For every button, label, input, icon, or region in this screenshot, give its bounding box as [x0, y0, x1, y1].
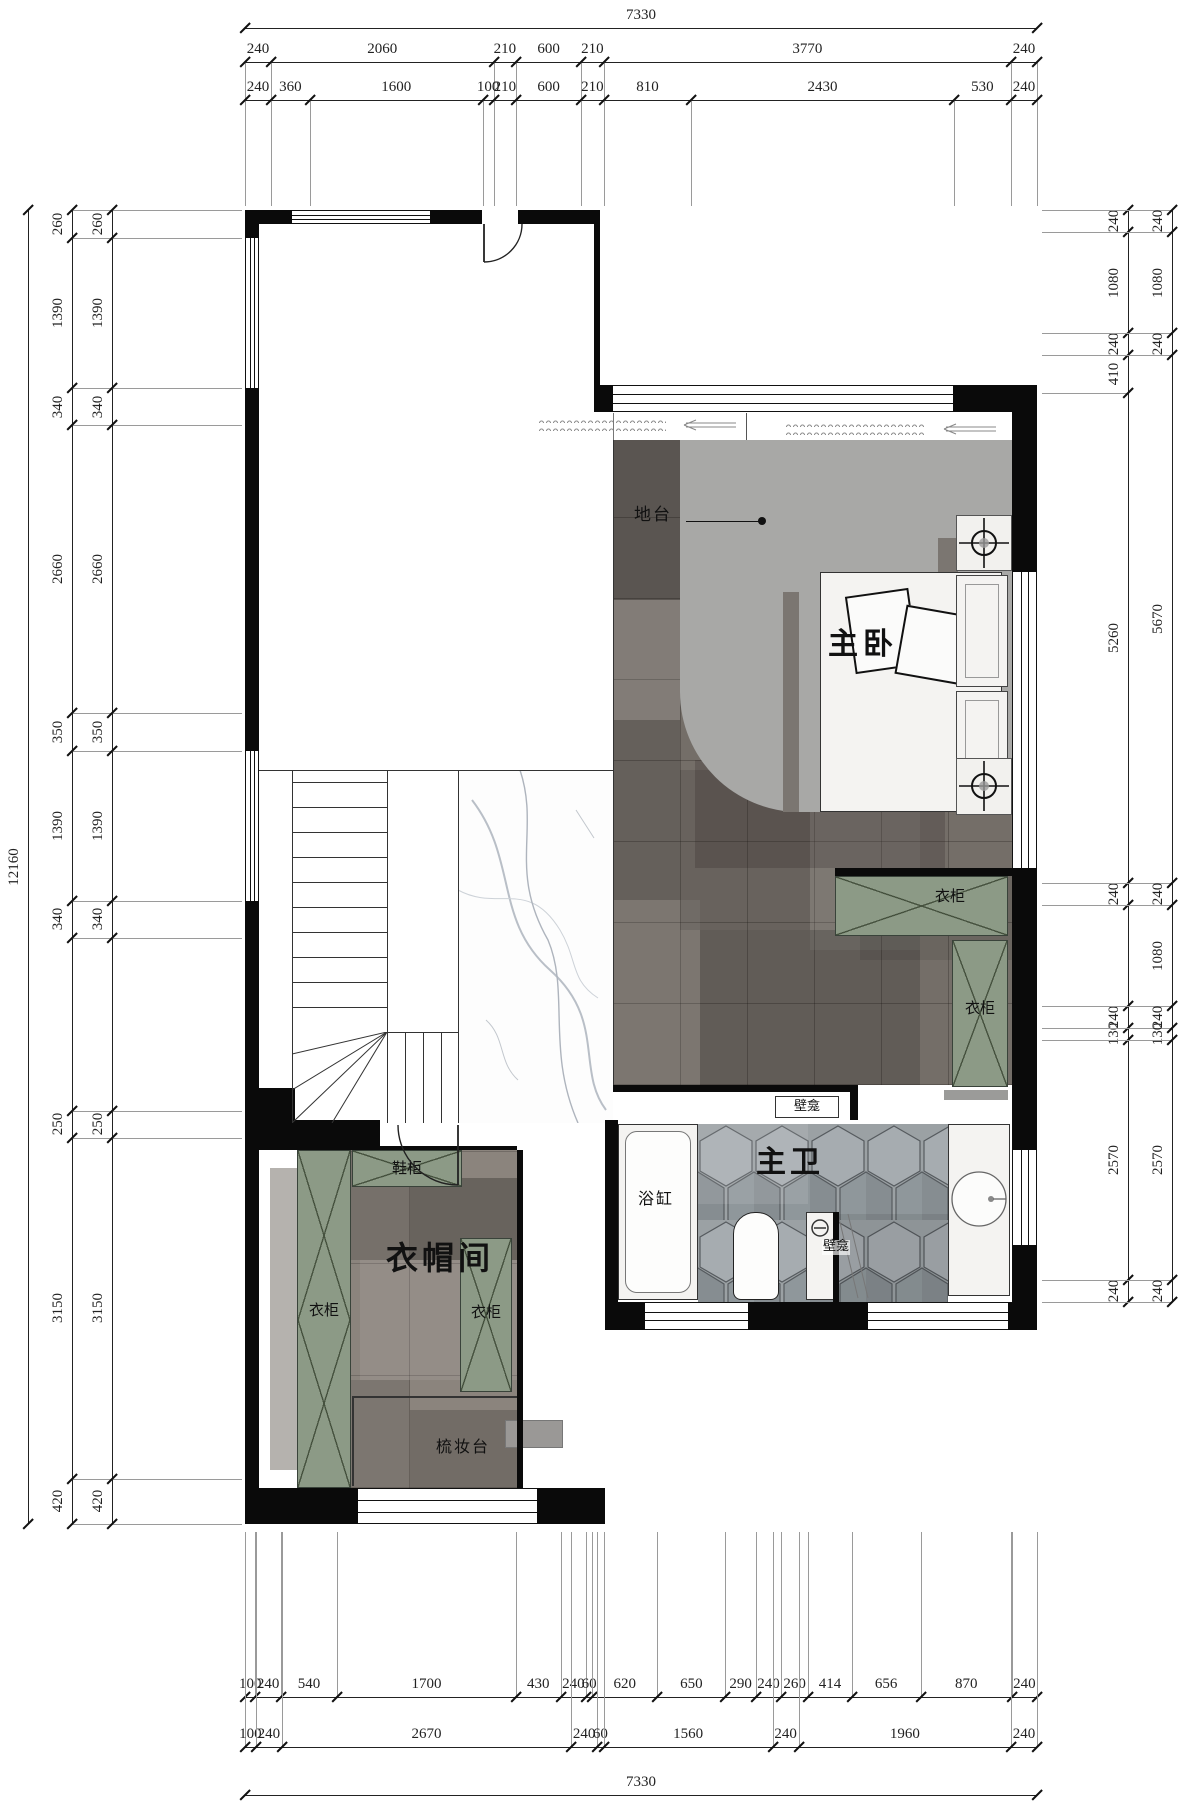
- dim-label: 240: [1013, 80, 1036, 95]
- dim-ext: [1037, 100, 1038, 206]
- window-line: [254, 238, 255, 388]
- dim-label: 340: [51, 908, 66, 931]
- dim-ext: [310, 100, 311, 206]
- dim-ext: [516, 100, 517, 206]
- dim-line: [245, 1747, 1037, 1748]
- dim-label: 2570: [1107, 1145, 1122, 1175]
- dim-label: 240: [1107, 333, 1122, 356]
- dim-label: 240: [1107, 210, 1122, 233]
- window: [1012, 1150, 1037, 1245]
- dim-label: 350: [91, 721, 106, 744]
- dim-label: 1560: [673, 1727, 703, 1742]
- dim-label: 1960: [890, 1727, 920, 1742]
- bathtub: [618, 1124, 698, 1300]
- window-line: [358, 1512, 537, 1513]
- window: [645, 1302, 748, 1330]
- window-line: [868, 1320, 1008, 1321]
- wall-segment: [605, 1302, 645, 1330]
- dim-label: 1600: [381, 80, 411, 95]
- dim-line: [245, 100, 1037, 101]
- dim-label: 130: [1107, 1023, 1122, 1046]
- niche-label: 壁龛: [822, 1240, 850, 1255]
- tile-patch: [613, 600, 680, 720]
- dim-ext: [561, 1532, 562, 1697]
- window-line: [613, 403, 953, 404]
- wall-segment: [748, 1302, 868, 1330]
- dim-ext: [112, 713, 242, 714]
- dim-label: 250: [91, 1113, 106, 1136]
- dim-label: 240: [1107, 1280, 1122, 1303]
- room-boundary-line: [613, 440, 614, 1085]
- dim-ext: [1042, 1040, 1172, 1041]
- dim-label: 3150: [51, 1293, 66, 1323]
- dim-label: 240: [1151, 1280, 1166, 1303]
- dim-label: 240: [757, 1677, 780, 1692]
- wall-segment: [605, 1120, 618, 1330]
- dressing-table-edge: [352, 1396, 354, 1486]
- stair-edge: [458, 770, 459, 1123]
- dim-label: 60: [582, 1677, 597, 1692]
- dim-label: 2670: [411, 1727, 441, 1742]
- leader-line: [686, 521, 762, 522]
- dim-label: 250: [51, 1113, 66, 1136]
- wall-segment: [835, 868, 1012, 876]
- light-fixture-box: [956, 758, 1012, 815]
- platform-label: 地台: [634, 506, 672, 526]
- dim-label: 2430: [808, 80, 838, 95]
- bay-window-inner-band: [530, 413, 1012, 440]
- dim-label: 5260: [1107, 623, 1122, 653]
- dim-label: 600: [537, 42, 560, 57]
- vanity-basin: [949, 1125, 1009, 1295]
- dim-label: 530: [971, 80, 994, 95]
- bath-niche-column: [806, 1212, 834, 1300]
- dim-ext: [282, 1532, 283, 1747]
- window-direction-arrow-icon: [670, 419, 740, 431]
- tile-patch: [613, 720, 680, 900]
- dim-label: 240: [774, 1727, 797, 1742]
- dim-label: 240: [257, 1677, 280, 1692]
- wall-segment: [594, 210, 600, 385]
- dim-ext: [1011, 100, 1012, 206]
- shower-glass-lines: [836, 1212, 872, 1300]
- crosshair-icon: [957, 516, 1011, 570]
- niche-partition: [833, 1212, 839, 1302]
- stair-tread: [292, 1007, 387, 1008]
- dim-line: [245, 1795, 1037, 1796]
- dim-label: 130: [1151, 1023, 1166, 1046]
- stair-winders: [292, 1032, 387, 1123]
- dim-ext: [337, 1532, 338, 1697]
- niche-box: 壁龛: [775, 1096, 839, 1118]
- toilet: [733, 1212, 779, 1300]
- dim-line: [245, 62, 1037, 63]
- wardrobe-label: 衣柜: [460, 1304, 512, 1321]
- wardrobe-x-panel: [298, 1320, 350, 1487]
- window-line: [1021, 1150, 1022, 1245]
- wardrobe-unit: [835, 876, 1008, 936]
- dim-label: 3770: [792, 42, 822, 57]
- bathtub-basin: [625, 1131, 691, 1293]
- dim-label: 2660: [91, 554, 106, 584]
- dim-ext: [799, 1532, 800, 1747]
- dim-label: 420: [91, 1490, 106, 1513]
- dim-label: 1390: [91, 811, 106, 841]
- stair-tread: [292, 857, 387, 858]
- dim-label: 430: [527, 1677, 550, 1692]
- dim-ext: [592, 1532, 593, 1697]
- window-line: [250, 238, 251, 388]
- dim-label: 240: [1013, 1727, 1036, 1742]
- window-line: [1021, 572, 1022, 868]
- dim-ext: [1037, 1532, 1038, 1747]
- dim-ext: [604, 100, 605, 206]
- dim-ext: [1042, 393, 1128, 394]
- window-line: [292, 215, 430, 216]
- dim-label: 210: [494, 42, 517, 57]
- insulation-squiggle: [785, 420, 925, 427]
- dim-label: 240: [1151, 333, 1166, 356]
- floorplan-canvas: 壁龛 鞋柜: [0, 0, 1200, 1814]
- dim-label: 260: [51, 213, 66, 236]
- dim-label: 410: [1107, 363, 1122, 386]
- dim-ext: [256, 1532, 257, 1747]
- light-fixture-box: [956, 515, 1012, 571]
- stair-tread: [292, 782, 387, 783]
- door-jamb: [850, 1085, 858, 1120]
- dim-ext: [1042, 355, 1172, 356]
- window: [292, 210, 430, 224]
- window-divider: [613, 413, 614, 440]
- dim-ext: [494, 100, 495, 206]
- dim-line: [28, 210, 29, 1524]
- stair-tread: [292, 907, 387, 908]
- dim-label: 1080: [1107, 268, 1122, 298]
- stair-tread: [292, 832, 387, 833]
- wardrobe-shelf: [944, 1090, 1008, 1100]
- dim-ext: [112, 751, 242, 752]
- room-label-master-bath: 主卫: [756, 1146, 824, 1181]
- window-line: [250, 751, 251, 901]
- dim-label: 210: [581, 80, 604, 95]
- dim-label: 240: [247, 80, 270, 95]
- dim-label: 2570: [1151, 1145, 1166, 1175]
- niche-label: 壁龛: [794, 1100, 820, 1115]
- stair-tread: [292, 882, 387, 883]
- dim-label: 650: [680, 1677, 703, 1692]
- dim-label: 7330: [626, 8, 656, 23]
- dim-label: 1700: [411, 1677, 441, 1692]
- dim-line: [245, 28, 1037, 29]
- dim-ext: [586, 1532, 587, 1697]
- wall-segment: [613, 1085, 858, 1092]
- leader-dot: [758, 517, 766, 525]
- dim-ext: [112, 210, 242, 211]
- room-label-walk-in-closet: 衣帽间: [386, 1240, 494, 1277]
- dim-label: 240: [1013, 1677, 1036, 1692]
- closet-door-swing: [382, 1123, 462, 1187]
- stair-edge: [387, 770, 388, 1123]
- window: [358, 1488, 537, 1524]
- dim-ext: [483, 100, 484, 206]
- dim-label: 656: [875, 1677, 898, 1692]
- stair-tread: [441, 1032, 442, 1123]
- dim-label: 620: [613, 1677, 636, 1692]
- dim-label: 3150: [91, 1293, 106, 1323]
- dim-ext: [604, 1532, 605, 1747]
- wall-segment: [259, 1120, 380, 1150]
- dim-ext: [1042, 1302, 1172, 1303]
- stool: [505, 1420, 563, 1448]
- dim-label: 2060: [367, 42, 397, 57]
- dim-label: 340: [91, 396, 106, 419]
- dim-ext: [571, 1532, 572, 1747]
- window: [245, 751, 259, 901]
- dim-ext: [808, 1532, 809, 1697]
- dim-label: 1080: [1151, 268, 1166, 298]
- dim-label: 12160: [7, 848, 22, 886]
- dim-ext: [112, 938, 242, 939]
- dim-label: 240: [1151, 883, 1166, 906]
- dim-label: 260: [91, 213, 106, 236]
- dim-label: 414: [819, 1677, 842, 1692]
- marble-veins: [458, 770, 613, 1123]
- wall-segment: [245, 1488, 358, 1524]
- dim-ext: [112, 388, 242, 389]
- insulation-squiggle: [538, 424, 666, 431]
- dim-ext: [773, 1532, 774, 1747]
- stair-tread: [292, 982, 387, 983]
- window-line: [1028, 1150, 1029, 1245]
- dim-label: 290: [729, 1677, 752, 1692]
- window-line: [868, 1312, 1008, 1313]
- dim-label: 540: [298, 1677, 321, 1692]
- marble-hall-floor: [458, 770, 613, 1123]
- dim-ext: [112, 1111, 242, 1112]
- dim-ext: [756, 1532, 757, 1697]
- dim-label: 210: [494, 80, 517, 95]
- stair-tread: [292, 957, 387, 958]
- tile-patch: [613, 900, 700, 1085]
- dim-ext: [657, 1532, 658, 1697]
- dim-label: 1390: [51, 811, 66, 841]
- cabinet-door-line: [965, 584, 999, 678]
- dim-ext: [1042, 905, 1172, 906]
- dim-label: 340: [91, 908, 106, 931]
- dim-label: 260: [783, 1677, 806, 1692]
- dim-ext: [112, 1524, 242, 1525]
- bathtub-label: 浴缸: [638, 1190, 674, 1208]
- wall-segment: [594, 385, 613, 412]
- dim-ext: [921, 1532, 922, 1697]
- dressing-table-edge: [352, 1396, 517, 1398]
- bay-window: [613, 385, 953, 412]
- entry-door-swing: [482, 222, 524, 266]
- dim-ext: [1042, 232, 1172, 233]
- dim-label: 600: [537, 80, 560, 95]
- dim-label: 240: [1013, 42, 1036, 57]
- wall-segment: [517, 1150, 523, 1488]
- wall-corner: [1008, 1302, 1037, 1330]
- stair-tread: [292, 932, 387, 933]
- dim-label: 2660: [51, 554, 66, 584]
- dim-line: [1172, 210, 1173, 1302]
- dim-label: 5670: [1151, 604, 1166, 634]
- dim-ext: [112, 901, 242, 902]
- window-direction-arrow-icon: [930, 423, 1000, 435]
- dim-label: 240: [247, 42, 270, 57]
- dressing-table-label: 梳妆台: [436, 1438, 490, 1456]
- window-divider: [746, 413, 747, 440]
- dim-label: 1080: [1151, 941, 1166, 971]
- room-label-master-bedroom: 主卧: [828, 628, 898, 663]
- dim-ext: [852, 1532, 853, 1697]
- window-line: [1028, 572, 1029, 868]
- dim-ext: [1011, 1532, 1012, 1747]
- dim-label: 360: [279, 80, 302, 95]
- dim-label: 810: [636, 80, 659, 95]
- window-line: [645, 1312, 748, 1313]
- wardrobe-label: 衣柜: [954, 1000, 1006, 1017]
- window-line: [292, 219, 430, 220]
- dim-label: 420: [51, 1490, 66, 1513]
- floorplan-drawing: 壁龛 鞋柜: [0, 0, 1200, 1814]
- window: [1012, 572, 1037, 868]
- wall-segment: [1012, 385, 1037, 572]
- dim-ext: [597, 1532, 598, 1747]
- dim-label: 60: [593, 1727, 608, 1742]
- window-line: [613, 394, 953, 395]
- platform-step-block: [938, 538, 958, 572]
- window: [868, 1302, 1008, 1330]
- dim-ext: [516, 1532, 517, 1697]
- wall-segment: [259, 1088, 295, 1122]
- stair-tread: [405, 1032, 406, 1123]
- dim-line: [112, 210, 113, 1524]
- insulation-squiggle: [785, 428, 925, 435]
- dim-ext: [112, 1138, 242, 1139]
- wall-segment: [518, 210, 600, 224]
- dim-label: 7330: [626, 1775, 656, 1790]
- dim-ext: [691, 100, 692, 206]
- window-line: [645, 1320, 748, 1321]
- dim-ext: [954, 100, 955, 206]
- dim-label: 1390: [91, 298, 106, 328]
- stair-tread: [423, 1032, 424, 1123]
- dim-label: 240: [1151, 210, 1166, 233]
- wardrobe-label: 衣柜: [890, 888, 1010, 905]
- dim-ext: [245, 1532, 246, 1747]
- bedside-dark-strip: [783, 592, 799, 812]
- dim-ext: [245, 100, 246, 206]
- dim-label: 870: [955, 1677, 978, 1692]
- dim-ext: [112, 1479, 242, 1480]
- wardrobe-label: 衣柜: [297, 1302, 351, 1319]
- crosshair-icon: [957, 759, 1011, 813]
- dim-ext: [781, 1532, 782, 1697]
- bedside-cabinet: [956, 575, 1008, 687]
- dim-label: 1390: [51, 298, 66, 328]
- dim-line: [1128, 210, 1129, 1302]
- dim-label: 350: [51, 721, 66, 744]
- window: [245, 238, 259, 388]
- dim-ext: [271, 100, 272, 206]
- dim-line: [72, 210, 73, 1524]
- wardrobe-shadow: [270, 1168, 297, 1470]
- dim-label: 340: [51, 396, 66, 419]
- window-line: [358, 1500, 537, 1501]
- wall-segment: [537, 1488, 605, 1524]
- dim-label: 240: [1107, 883, 1122, 906]
- vanity-counter: [948, 1124, 1010, 1296]
- window-line: [254, 751, 255, 901]
- insulation-squiggle: [538, 416, 666, 423]
- dim-label: 240: [258, 1727, 281, 1742]
- dim-ext: [112, 238, 242, 239]
- dim-label: 210: [581, 42, 604, 57]
- stair-tread: [292, 807, 387, 808]
- dim-ext: [581, 100, 582, 206]
- dim-ext: [112, 425, 242, 426]
- room-boundary-line: [259, 770, 613, 771]
- dim-ext: [725, 1532, 726, 1697]
- wardrobe-x-panel: [298, 1151, 350, 1320]
